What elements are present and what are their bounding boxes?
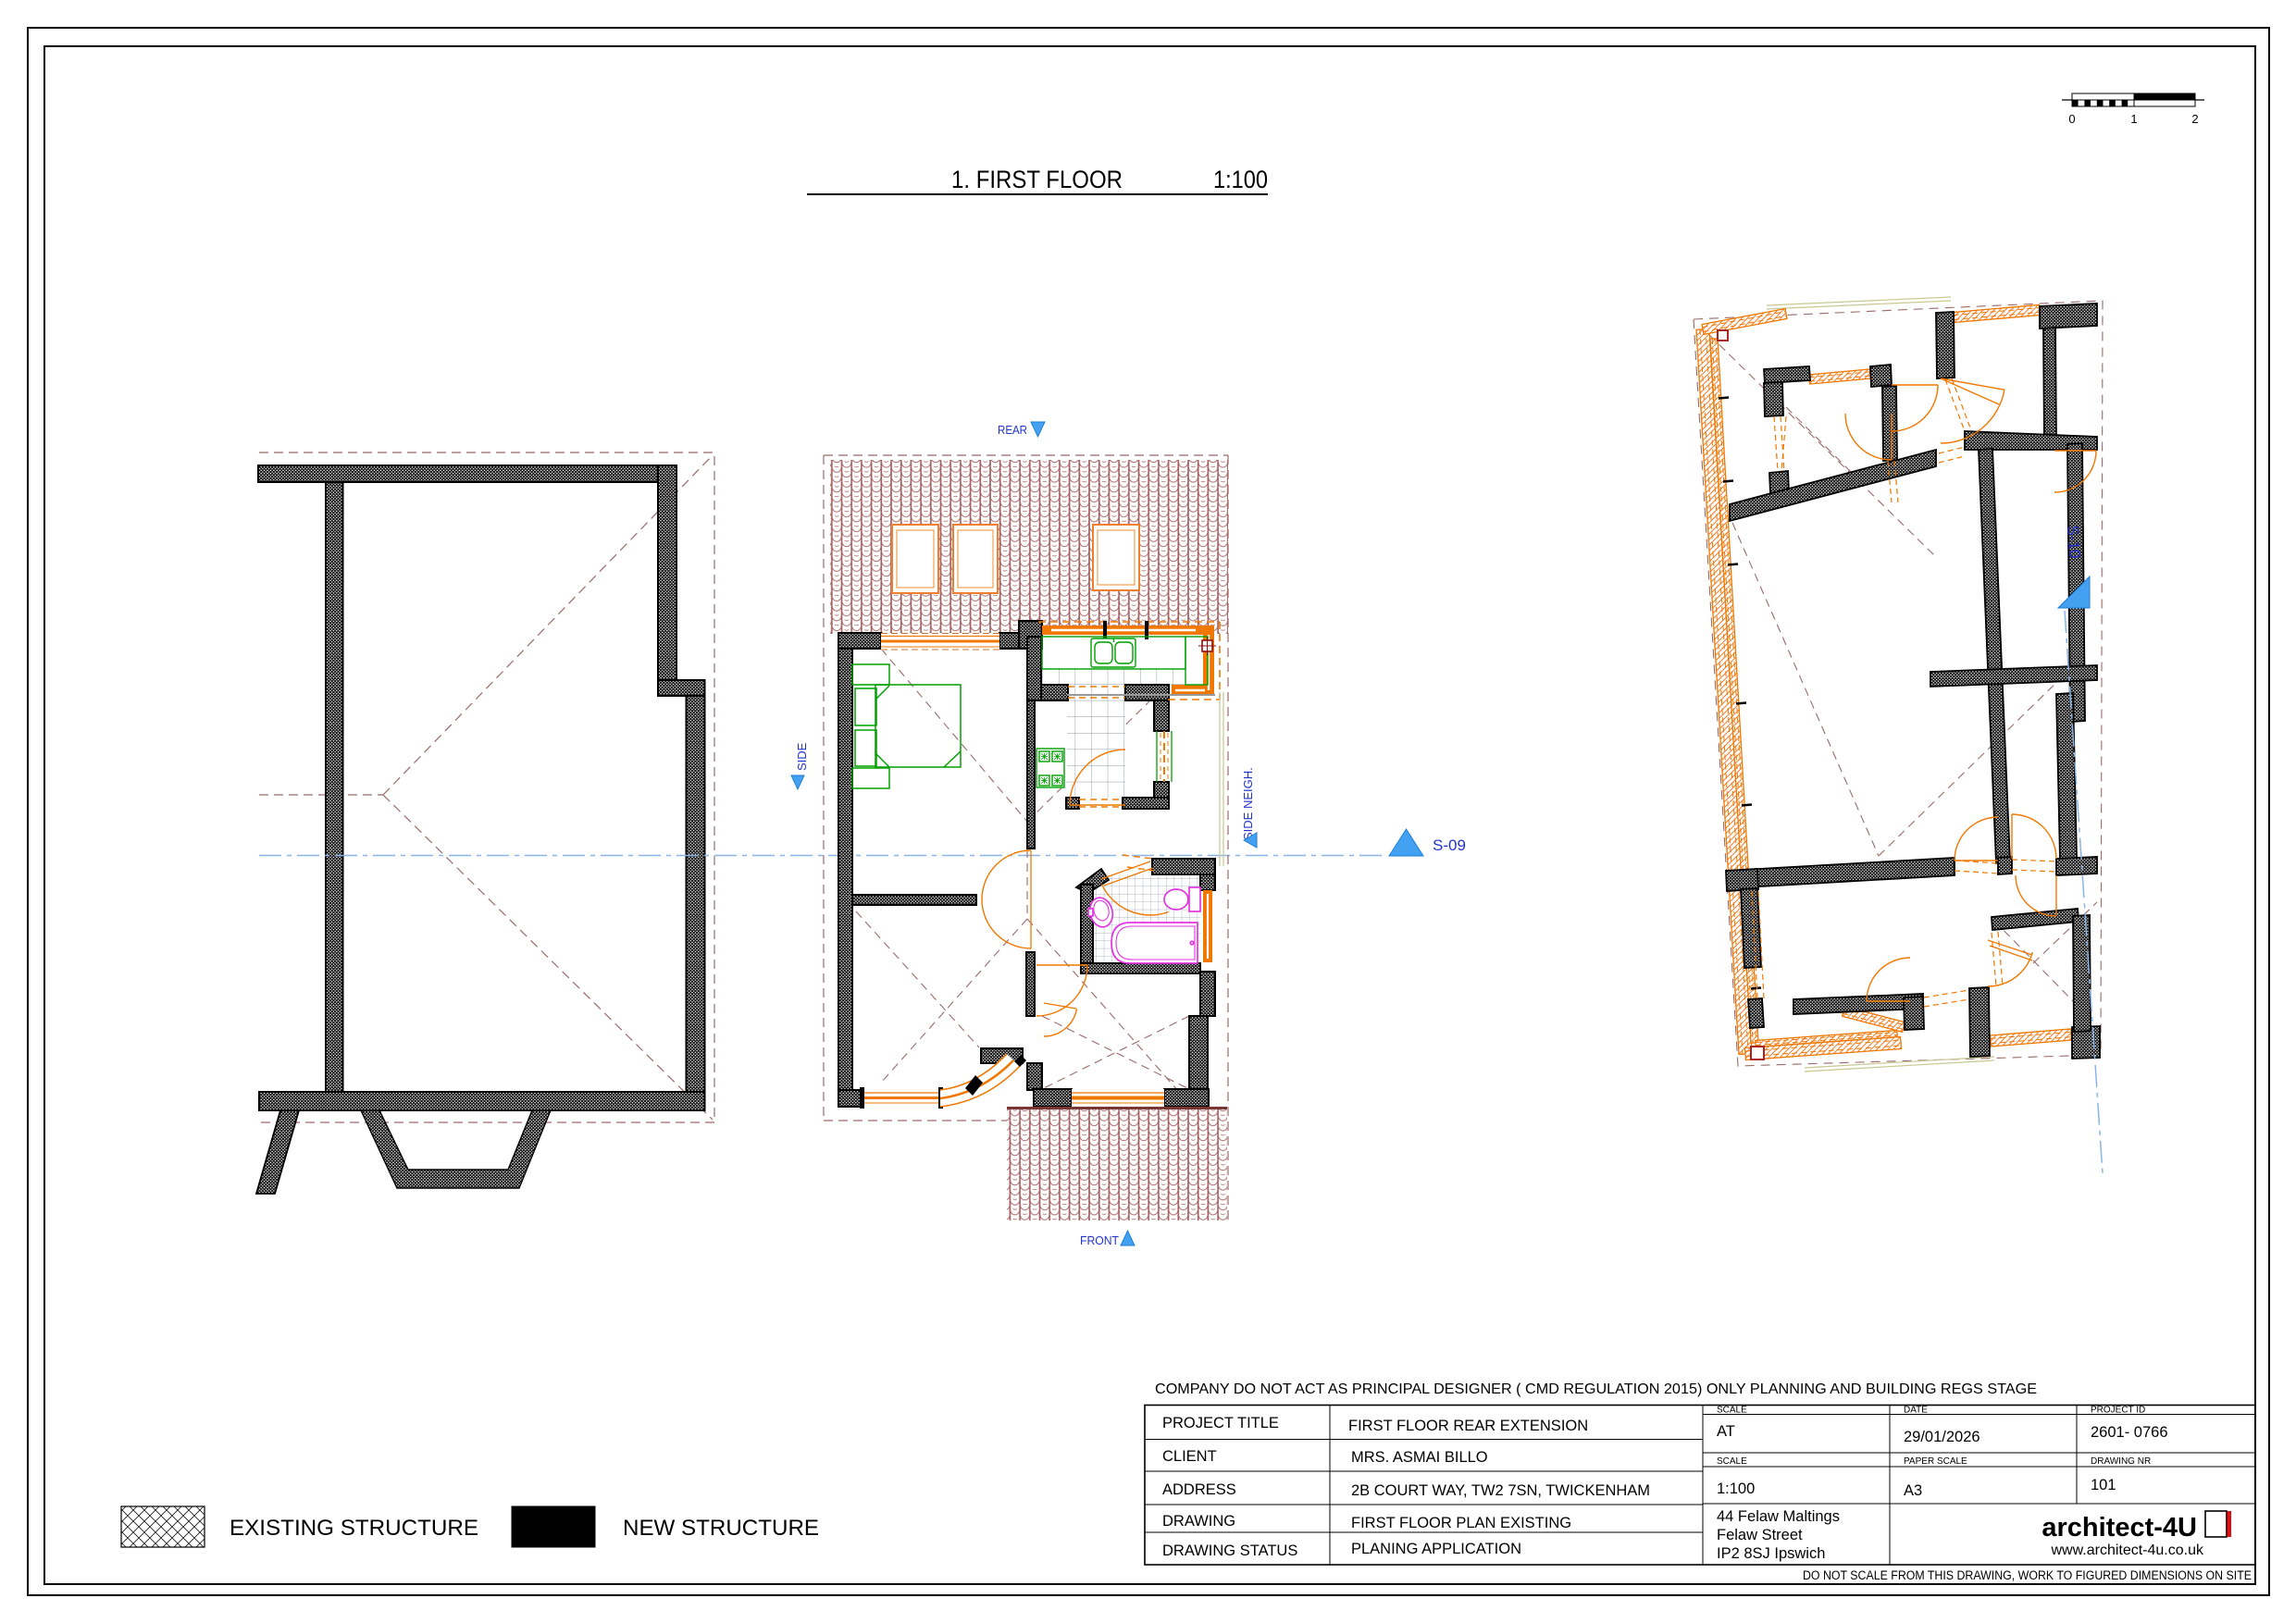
svg-text:44 Felaw Maltings: 44 Felaw Maltings [1717, 1508, 1840, 1525]
svg-text:AT: AT [1717, 1423, 1735, 1440]
svg-text:S-09: S-09 [1433, 836, 1466, 854]
svg-text:PLANING APPLICATION: PLANING APPLICATION [1351, 1541, 1521, 1557]
svg-text:2B COURT WAY, TW2 7SN, TWICKE: 2B COURT WAY, TW2 7SN, TWICKENHAM [1351, 1482, 1650, 1499]
svg-text:S-10: S-10 [2064, 525, 2083, 559]
svg-text:A3: A3 [1904, 1482, 1922, 1499]
svg-text:101: 101 [2091, 1477, 2116, 1493]
svg-text:1: 1 [2130, 112, 2137, 126]
svg-text:SCALE: SCALE [1717, 1456, 1747, 1467]
svg-text:NEW STRUCTURE: NEW STRUCTURE [623, 1516, 819, 1541]
svg-text:SIDE: SIDE [795, 742, 809, 771]
svg-text:REAR: REAR [998, 423, 1027, 437]
svg-text:PROJECT ID: PROJECT ID [2091, 1406, 2145, 1416]
svg-text:Felaw Street: Felaw Street [1717, 1527, 1803, 1543]
svg-text:www.architect-4u.co.uk: www.architect-4u.co.uk [2050, 1542, 2204, 1558]
svg-text:DO NOT SCALE FROM THIS DRAWING: DO NOT SCALE FROM THIS DRAWING, WORK TO … [1803, 1568, 2252, 1582]
svg-text:29/01/2026: 29/01/2026 [1904, 1429, 1980, 1445]
svg-text:DRAWING NR: DRAWING NR [2091, 1456, 2151, 1467]
svg-text:DATE: DATE [1904, 1406, 1928, 1416]
svg-text:SCALE: SCALE [1717, 1406, 1747, 1416]
svg-text:EXISTING STRUCTURE: EXISTING STRUCTURE [230, 1516, 478, 1541]
svg-text:FIRST FLOOR PLAN EXISTING: FIRST FLOOR PLAN EXISTING [1351, 1515, 1571, 1531]
svg-text:0: 0 [2068, 112, 2075, 126]
svg-text:1:100: 1:100 [1717, 1481, 1755, 1497]
svg-text:DRAWING STATUS: DRAWING STATUS [1162, 1542, 1297, 1559]
svg-text:IP2 8SJ Ipswich: IP2 8SJ Ipswich [1717, 1545, 1825, 1562]
svg-text:PROJECT TITLE: PROJECT TITLE [1162, 1415, 1279, 1431]
svg-text:SIDE NEIGH.: SIDE NEIGH. [1241, 767, 1255, 840]
svg-text:DRAWING: DRAWING [1162, 1513, 1235, 1530]
svg-text:2: 2 [2191, 112, 2198, 126]
svg-text:FRONT: FRONT [1080, 1233, 1119, 1247]
svg-text:FIRST FLOOR REAR EXTENSION: FIRST FLOOR REAR EXTENSION [1348, 1418, 1588, 1434]
svg-text:1. FIRST FLOOR: 1. FIRST FLOOR [951, 166, 1123, 193]
svg-text:ADDRESS: ADDRESS [1162, 1481, 1236, 1498]
svg-text:MRS. ASMAI BILLO: MRS. ASMAI BILLO [1351, 1449, 1488, 1466]
svg-text:1:100: 1:100 [1213, 166, 1268, 193]
svg-text:architect-4U: architect-4U [2042, 1513, 2197, 1542]
svg-text:PAPER SCALE: PAPER SCALE [1904, 1456, 1967, 1467]
svg-text:COMPANY DO NOT ACT AS PRINCIPA: COMPANY DO NOT ACT AS PRINCIPAL DESIGNER… [1155, 1381, 2037, 1397]
svg-text:CLIENT: CLIENT [1162, 1448, 1217, 1465]
svg-text:2601- 0766: 2601- 0766 [2091, 1424, 2168, 1441]
